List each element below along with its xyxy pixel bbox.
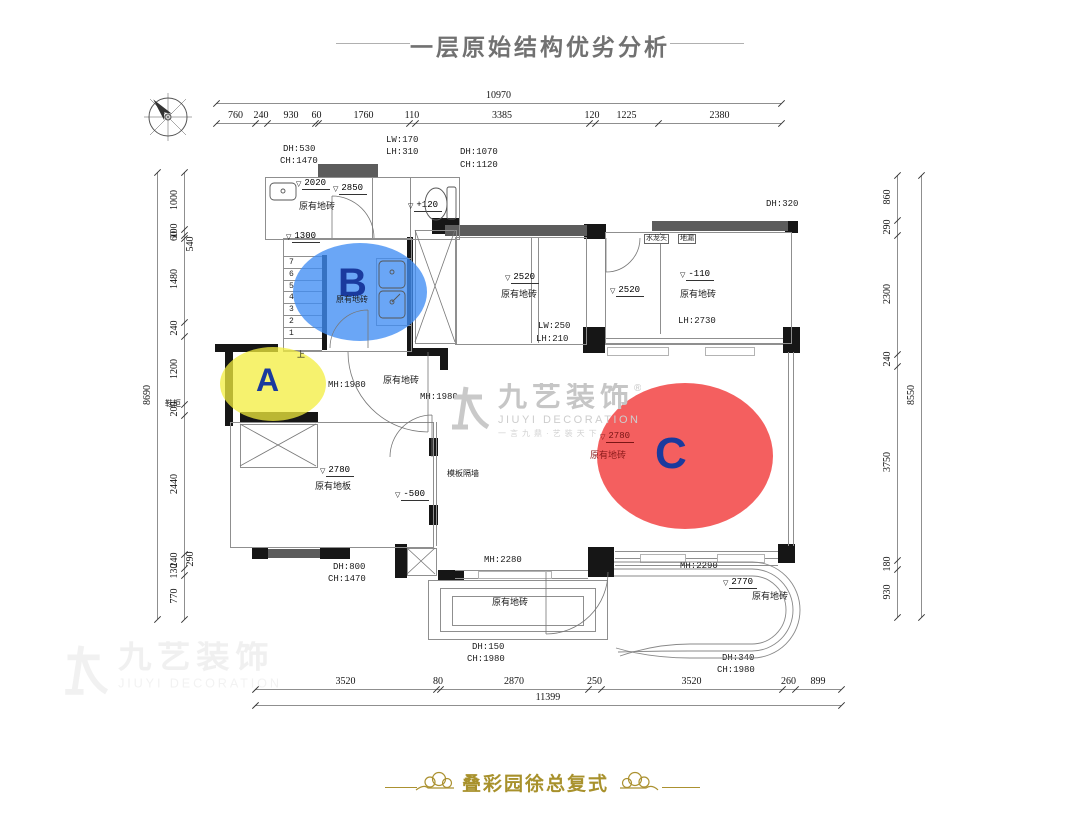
level-triangle-icon: ▽ [395,492,400,500]
fixture-tag: 地漏 [678,234,696,244]
plan-label: 原有地砖 [336,297,368,305]
dim-label: 2440 [170,464,180,504]
dim-label: 3750 [883,442,893,482]
wall-segment [584,224,606,239]
dim-label: 930 [883,572,893,612]
level-value: 2020 [302,178,330,190]
plan-label: DH:340 [722,654,754,663]
plan-label: MH:1980 [328,381,366,390]
plan-label: LW:170 [386,136,418,145]
window-beam [445,225,587,236]
stair-number: 4 [289,294,294,302]
zone-letter-a: A [256,362,279,399]
plan-line [788,352,789,546]
dim-label: 1200 [170,349,180,389]
plan-label: LH:210 [536,335,568,344]
dim-label: 2380 [695,111,745,121]
level-triangle-icon: ▽ [408,203,413,211]
watermark-faint-cn: 九艺装饰 [118,641,274,676]
page-background: 一层原始结构优劣分析 7654321DH:530CH:1470LW:170LH:… [0,0,1080,826]
plan-label: DH:150 [472,643,504,652]
dim-label: 3520 [321,677,371,687]
plan-label: 原有地板 [315,483,351,492]
cloud-ornament-left [414,770,460,796]
plan-line [615,551,778,552]
stair-number: 3 [289,306,294,314]
cloud-ornament-right [614,770,660,796]
window-beam [268,549,320,558]
watermark-faint: 九艺装饰 JIUYI DECORATION [61,641,282,699]
zone-letter-c: C [655,429,687,479]
dim-total-label: 8690 [143,375,153,415]
wall-segment [588,547,614,577]
dim-chain-line [255,689,841,690]
dim-label: 2870 [489,677,539,687]
level-triangle-icon: ▽ [286,234,291,242]
wall-segment [778,544,795,563]
dim-tick [894,614,901,621]
plan-label: CH:1470 [328,575,366,584]
plan-label: LH:2730 [678,317,716,326]
footer-project-name: 叠彩园徐总复式 [462,769,609,796]
level-mark: ▽2770 [723,577,757,588]
dim-tick [838,702,845,709]
footer-line-left [385,787,417,788]
watermark-faint-glyph [61,641,112,699]
wall-segment [440,348,448,370]
dim-label: 200 [170,389,180,429]
plan-line [605,338,783,339]
plan-label: LH:310 [386,148,418,157]
plan-label: 原有地砖 [752,593,788,602]
plan-label: DH:530 [283,145,315,154]
sliding-panel [717,554,765,563]
plan-label: CH:1980 [717,666,755,675]
plan-label: CH:1470 [280,157,318,166]
dim-label: 3385 [477,111,527,121]
plan-label: 模板隔墙 [447,471,479,479]
plan-label: CH:1120 [460,161,498,170]
watermark-cn: 九艺装饰 [498,383,634,413]
dim-tick [778,120,785,127]
window-beam [652,221,788,231]
watermark-slogan: 一言九鼎·艺装天下 [498,428,641,439]
watermark-en: JIUYI DECORATION [498,414,641,426]
plan-label: 原有地砖 [680,291,716,300]
level-mark: ▽2520 [610,285,644,296]
window-beam [318,164,378,177]
dim-chain-line [216,103,781,104]
watermark-faint-en: JIUYI DECORATION [118,677,282,691]
plan-label: 原有地砖 [383,377,419,386]
sliding-panel [607,347,669,356]
dim-label: 2300 [883,274,893,314]
dim-label: 60 [170,216,180,256]
level-mark: ▽2780 [320,465,354,476]
dim-label: 899 [793,677,843,687]
stair-number: 5 [289,283,294,291]
dim-tick [154,616,161,623]
dim-label: 770 [170,576,180,616]
level-triangle-icon: ▽ [723,580,728,588]
plan-label: DH:320 [766,200,798,209]
plan-label: DH:1070 [460,148,498,157]
dim-label: 250 [570,677,620,687]
dim-label: 240 [883,339,893,379]
plan-label: DH:800 [333,563,365,572]
level-mark: ▽2850 [333,183,367,194]
plan-label: LW:250 [538,322,570,331]
wall-segment [252,547,268,559]
room-outline [407,548,437,576]
level-mark: ▽1300 [286,231,320,242]
plan-label: MH:2290 [680,562,718,571]
dim-tick [838,686,845,693]
plan-line [605,344,783,345]
level-value: 2780 [326,465,354,477]
level-value: 2520 [511,272,539,284]
plan-label: 原有地砖 [590,452,626,461]
fixture-tag: 水龙头 [644,234,669,244]
level-mark: ▽-110 [680,269,714,280]
watermark-logo: 九艺装饰® JIUYI DECORATION 一言九鼎·艺装天下 [448,383,641,439]
level-mark: ▽+120 [408,200,442,211]
plan-label: 上 [297,352,305,360]
level-value: 2520 [616,285,644,297]
level-triangle-icon: ▽ [505,275,510,283]
stair-number: 6 [289,271,294,279]
dim-chain-line [255,705,841,706]
level-value: +120 [414,200,442,212]
footer-line-right [662,787,700,788]
level-value: 1300 [292,231,320,243]
level-mark: ▽2520 [505,272,539,283]
dim-total-label: 11399 [523,693,573,703]
level-triangle-icon: ▽ [680,272,685,280]
plan-label: 原有地砖 [299,203,335,212]
watermark-glyph [448,383,492,433]
dim-label: 80 [413,677,463,687]
plan-label: MH:2280 [484,556,522,565]
level-triangle-icon: ▽ [610,288,615,296]
plan-line [660,232,661,334]
dim-label: 240 [170,308,180,348]
dim-chain-line [897,175,898,617]
dim-tick [918,614,925,621]
dim-label: 1225 [602,111,652,121]
dim-chain-line [216,123,781,124]
plan-line [436,422,437,546]
stair-step-line [283,338,322,339]
level-mark: ▽2020 [296,178,330,189]
level-triangle-icon: ▽ [333,186,338,194]
level-value: 2850 [339,183,367,195]
stair-number: 1 [289,330,294,338]
dim-total-label: 10970 [474,91,524,101]
stair-number: 7 [289,259,294,267]
dim-label: 3520 [667,677,717,687]
plan-label: 原有地砖 [492,599,528,608]
wall-segment [395,544,407,578]
dim-chain-line [921,175,922,617]
level-value: -500 [401,489,429,501]
plan-line [793,352,794,546]
dim-chain-line [157,172,158,619]
wall-segment [320,547,350,559]
plan-label: CH:1980 [467,655,505,664]
stair-number: 2 [289,318,294,326]
dim-tick [778,100,785,107]
dim-label: 290 [883,207,893,247]
level-triangle-icon: ▽ [320,468,325,476]
plan-label: 原有地砖 [501,291,537,300]
dim-label: 110 [387,111,437,121]
dim-label: 1480 [170,259,180,299]
level-triangle-icon: ▽ [296,181,301,189]
room-outline [240,424,318,468]
level-value: 2770 [729,577,757,589]
sliding-panel [478,571,552,579]
dim-label: 1760 [339,111,389,121]
level-value: -110 [686,269,714,281]
dim-total-label: 8550 [907,375,917,415]
sliding-panel [705,347,755,356]
level-mark: ▽-500 [395,489,429,500]
dim-tick [181,616,188,623]
plan-line [372,177,373,238]
watermark-reg: ® [634,383,641,394]
dim-label: 60 [292,111,342,121]
